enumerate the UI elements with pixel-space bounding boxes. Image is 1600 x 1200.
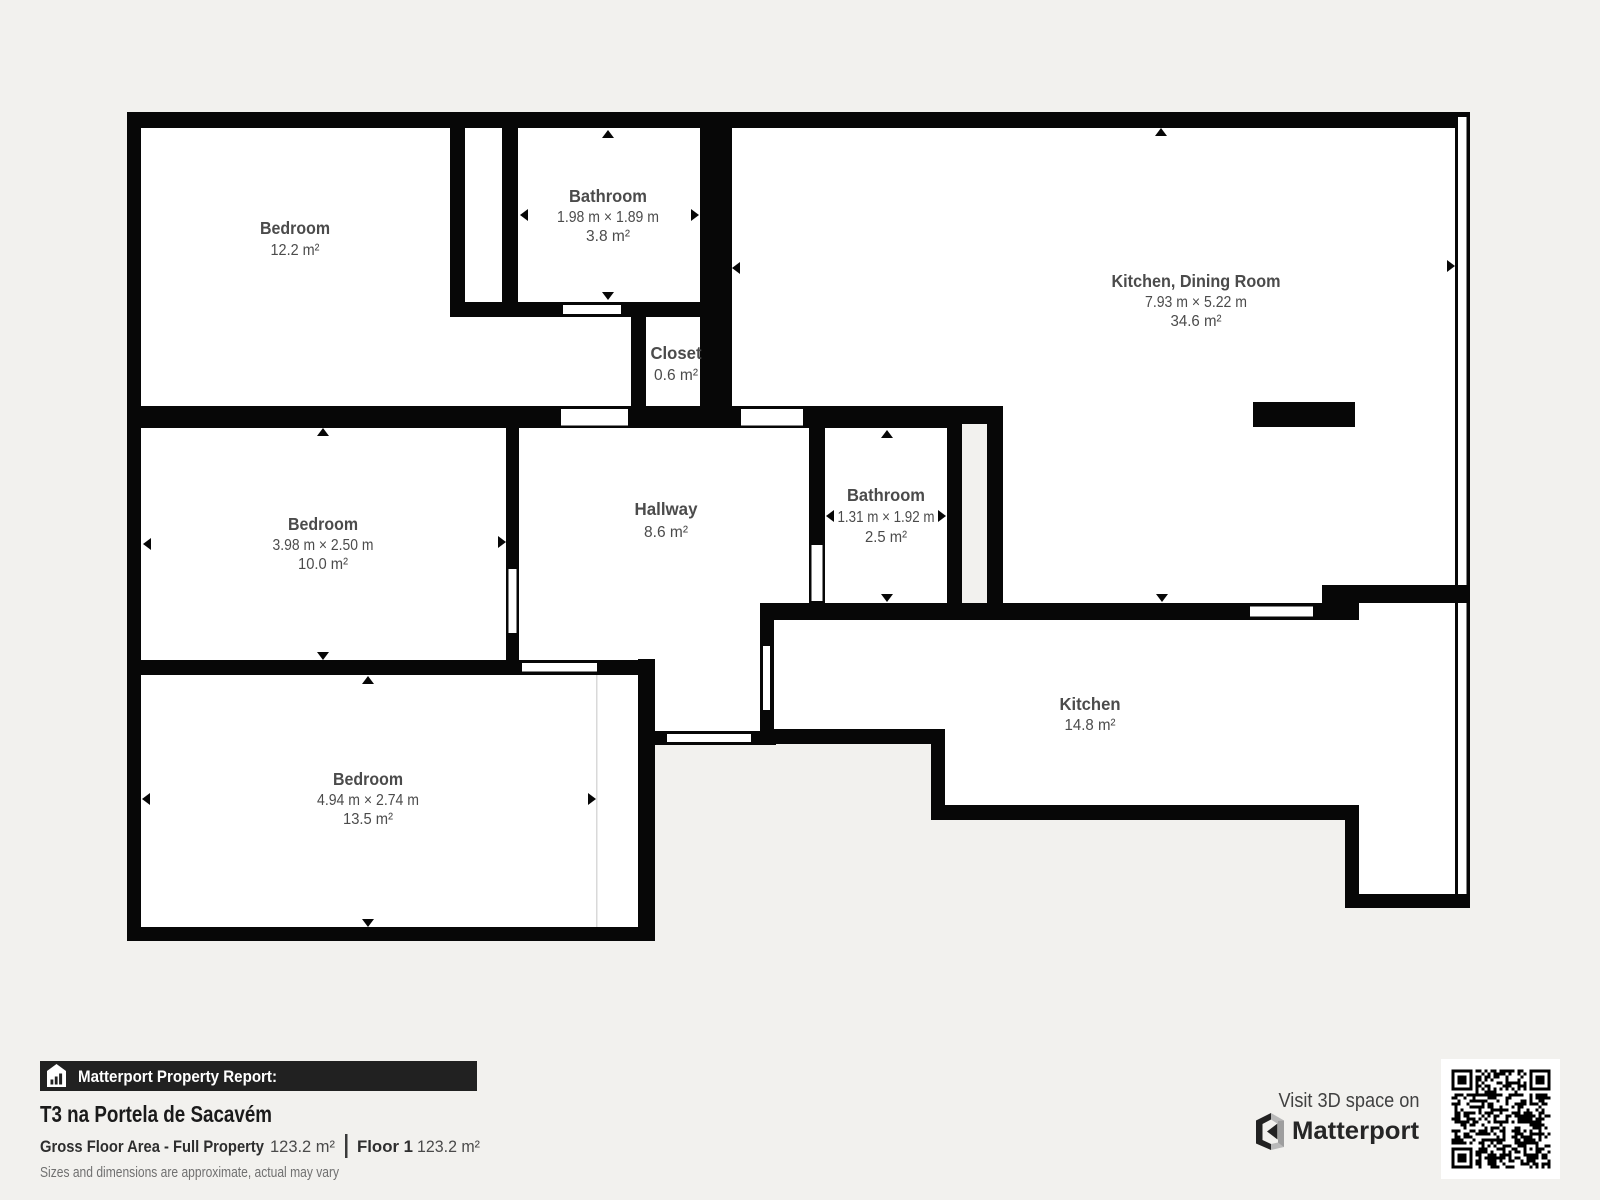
svg-text:Bedroom: Bedroom	[288, 514, 358, 534]
svg-text:T3 na Portela de Sacavém: T3 na Portela de Sacavém	[40, 1101, 272, 1127]
svg-text:Matterport Property Report:: Matterport Property Report:	[78, 1068, 277, 1086]
svg-text:Floor 1: Floor 1	[357, 1137, 413, 1156]
svg-text:0.6 m²: 0.6 m²	[654, 367, 699, 384]
svg-text:Hallway: Hallway	[635, 499, 698, 519]
svg-text:1.31 m × 1.92 m: 1.31 m × 1.92 m	[838, 509, 935, 526]
svg-text:123.2 m²: 123.2 m²	[270, 1137, 335, 1156]
svg-text:Bathroom: Bathroom	[847, 485, 925, 505]
svg-text:7.93 m × 5.22 m: 7.93 m × 5.22 m	[1145, 294, 1247, 311]
svg-text:Kitchen: Kitchen	[1060, 694, 1121, 714]
svg-text:Sizes and dimensions are appro: Sizes and dimensions are approximate, ac…	[40, 1164, 339, 1181]
svg-text:Bathroom: Bathroom	[569, 186, 647, 206]
svg-text:8.6 m²: 8.6 m²	[644, 524, 689, 541]
svg-text:14.8 m²: 14.8 m²	[1065, 717, 1117, 734]
svg-text:3.8 m²: 3.8 m²	[586, 228, 631, 245]
svg-text:Closet: Closet	[651, 343, 702, 363]
svg-text:13.5 m²: 13.5 m²	[343, 811, 394, 828]
svg-text:3.98 m × 2.50 m: 3.98 m × 2.50 m	[273, 537, 374, 554]
svg-text:12.2 m²: 12.2 m²	[271, 242, 321, 259]
svg-text:Kitchen, Dining Room: Kitchen, Dining Room	[1112, 271, 1281, 291]
svg-text:Bedroom: Bedroom	[260, 218, 330, 238]
svg-text:10.0 m²: 10.0 m²	[298, 556, 349, 573]
svg-text:123.2 m²: 123.2 m²	[417, 1137, 480, 1156]
svg-text:34.6 m²: 34.6 m²	[1171, 313, 1223, 330]
svg-text:Gross Floor Area - Full Proper: Gross Floor Area - Full Property	[40, 1137, 264, 1156]
svg-text:Matterport: Matterport	[1292, 1117, 1420, 1145]
svg-text:4.94 m × 2.74 m: 4.94 m × 2.74 m	[317, 792, 419, 809]
svg-text:Bedroom: Bedroom	[333, 769, 403, 789]
svg-text:2.5 m²: 2.5 m²	[865, 529, 908, 546]
svg-text:Visit 3D space on: Visit 3D space on	[1279, 1090, 1420, 1112]
svg-text:1.98 m × 1.89 m: 1.98 m × 1.89 m	[557, 209, 659, 226]
